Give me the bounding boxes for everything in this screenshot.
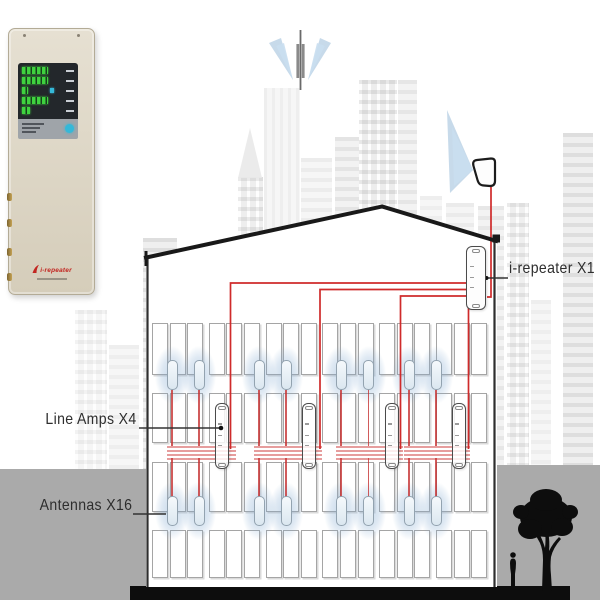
repeater-cap [472,249,480,253]
led-bar [22,87,28,94]
led-row [22,97,74,104]
led-label [66,70,74,72]
repeater-port [470,277,474,279]
repeater-port [470,287,474,289]
led-bar [22,67,48,74]
device-power-button [65,124,74,133]
led-bar [22,77,48,84]
tree-silhouette [513,489,578,591]
device-info-strip [18,119,78,139]
device-led-screen [18,63,78,119]
led-label [66,90,74,92]
diagram-canvas: i-repeater X1 Line Amps X4 Antennas X16 … [0,0,600,600]
led-label [66,110,74,112]
led-row [22,107,74,114]
label-antennas: Antennas X16 [39,497,132,515]
led-row [22,67,74,74]
logo-text: i-repeater [40,267,72,274]
led-row [22,87,74,94]
connector-nub [7,219,12,227]
donor-beam-icon [447,110,473,193]
led-label [66,100,74,102]
repeater-cap [472,304,480,308]
person-silhouette [510,552,516,591]
logo-subtext-line [37,278,67,281]
donor-antenna-icon [473,159,495,187]
strip-text-line [22,131,36,133]
screw-icon [23,34,26,37]
strip-text-line [22,123,44,125]
led-row [22,77,74,84]
repeater-port [470,266,474,268]
led-label [66,80,74,82]
cell-tower-icon [296,30,304,90]
label-i-repeater: i-repeater X1 [509,260,595,278]
status-dot [50,88,54,93]
connector-nub [7,193,12,201]
label-line-amps: Line Amps X4 [46,411,137,429]
i-repeater-unit [466,246,486,310]
led-bar [22,107,30,114]
building-outline [144,207,500,588]
device-display [18,63,78,139]
repeater-device-photo: i-repeater [8,28,95,295]
logo-swoosh-icon [31,264,40,274]
device-logo: i-repeater [9,259,94,281]
connector-nub [7,248,12,256]
strip-text-line [22,127,40,129]
screw-icon [77,34,80,37]
led-bar [22,97,48,104]
